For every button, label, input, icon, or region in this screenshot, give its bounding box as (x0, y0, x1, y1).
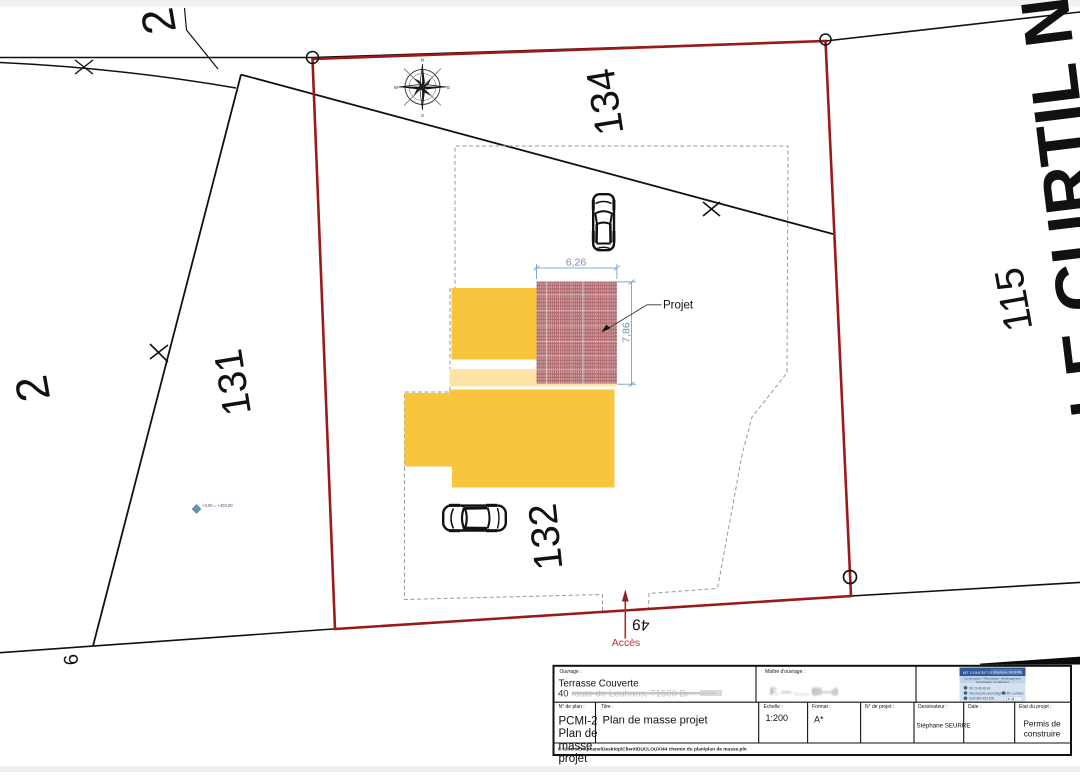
svg-text:Format :: Format : (812, 704, 831, 710)
svg-text:C:\Users\Stephane\Desktop\Clie: C:\Users\Stephane\Desktop\Client\DUCLOUX… (558, 747, 747, 753)
svg-text:Accès: Accès (612, 637, 641, 649)
svg-text:MT CONCEPTS: MT CONCEPTS (963, 670, 992, 675)
svg-text:Ouvrage :: Ouvrage : (560, 669, 582, 675)
svg-text:W: W (394, 85, 398, 90)
svg-text:Echelle :: Echelle : (764, 704, 783, 710)
svg-text:06 73 45 46 43: 06 73 45 46 43 (969, 686, 990, 690)
svg-text:7,86: 7,86 (620, 322, 632, 343)
svg-text:Siret 882 453 000: Siret 882 453 000 (969, 697, 994, 701)
svg-text:Titre :: Titre : (601, 704, 614, 710)
svg-text:71 Louhans: 71 Louhans (1007, 692, 1024, 696)
svg-text:S: S (421, 113, 424, 118)
svg-text:N: N (421, 58, 424, 63)
svg-text:Maître d'ouvrage :: Maître d'ouvrage : (765, 669, 805, 675)
svg-text:F. — ..... Bl—d: F. — ..... Bl—d (770, 686, 838, 698)
svg-text:Etat du projet :: Etat du projet : (1019, 704, 1052, 710)
svg-text:Stéphane SEURRE: Stéphane SEURRE (917, 723, 971, 730)
svg-text:Stéphane SEURRE: Stéphane SEURRE (993, 670, 1023, 674)
svg-text:+3,00 = +403,00: +3,00 = +403,00 (202, 503, 233, 508)
svg-text:N° de plan :: N° de plan : (559, 704, 585, 710)
svg-text:132: 132 (521, 501, 572, 572)
svg-text:E: E (447, 85, 450, 90)
svg-text:construire: construire (1024, 729, 1061, 739)
svg-text:Projet: Projet (663, 300, 694, 312)
svg-text:Dessinateur en bâtiment: Dessinateur en bâtiment (976, 680, 1009, 684)
svg-text:Dessinateur :: Dessinateur : (918, 704, 947, 710)
svg-text:Date :: Date : (968, 704, 981, 710)
svg-text:N° de projet :: N° de projet : (865, 704, 894, 710)
svg-text:PCMI-2: PCMI-2 (559, 716, 598, 728)
svg-text:Plan de: Plan de (559, 728, 598, 740)
svg-text:f in @: f in @ (1006, 697, 1014, 701)
svg-text:49: 49 (632, 615, 650, 633)
svg-text:6,26: 6,26 (566, 257, 587, 269)
svg-text:projet: projet (559, 753, 589, 765)
svg-text:1:200: 1:200 (766, 713, 789, 723)
svg-text:Permis de: Permis de (1023, 719, 1061, 729)
svg-text:A*: A* (814, 715, 824, 725)
svg-text:Plan de masse projet: Plan de masse projet (603, 715, 709, 727)
